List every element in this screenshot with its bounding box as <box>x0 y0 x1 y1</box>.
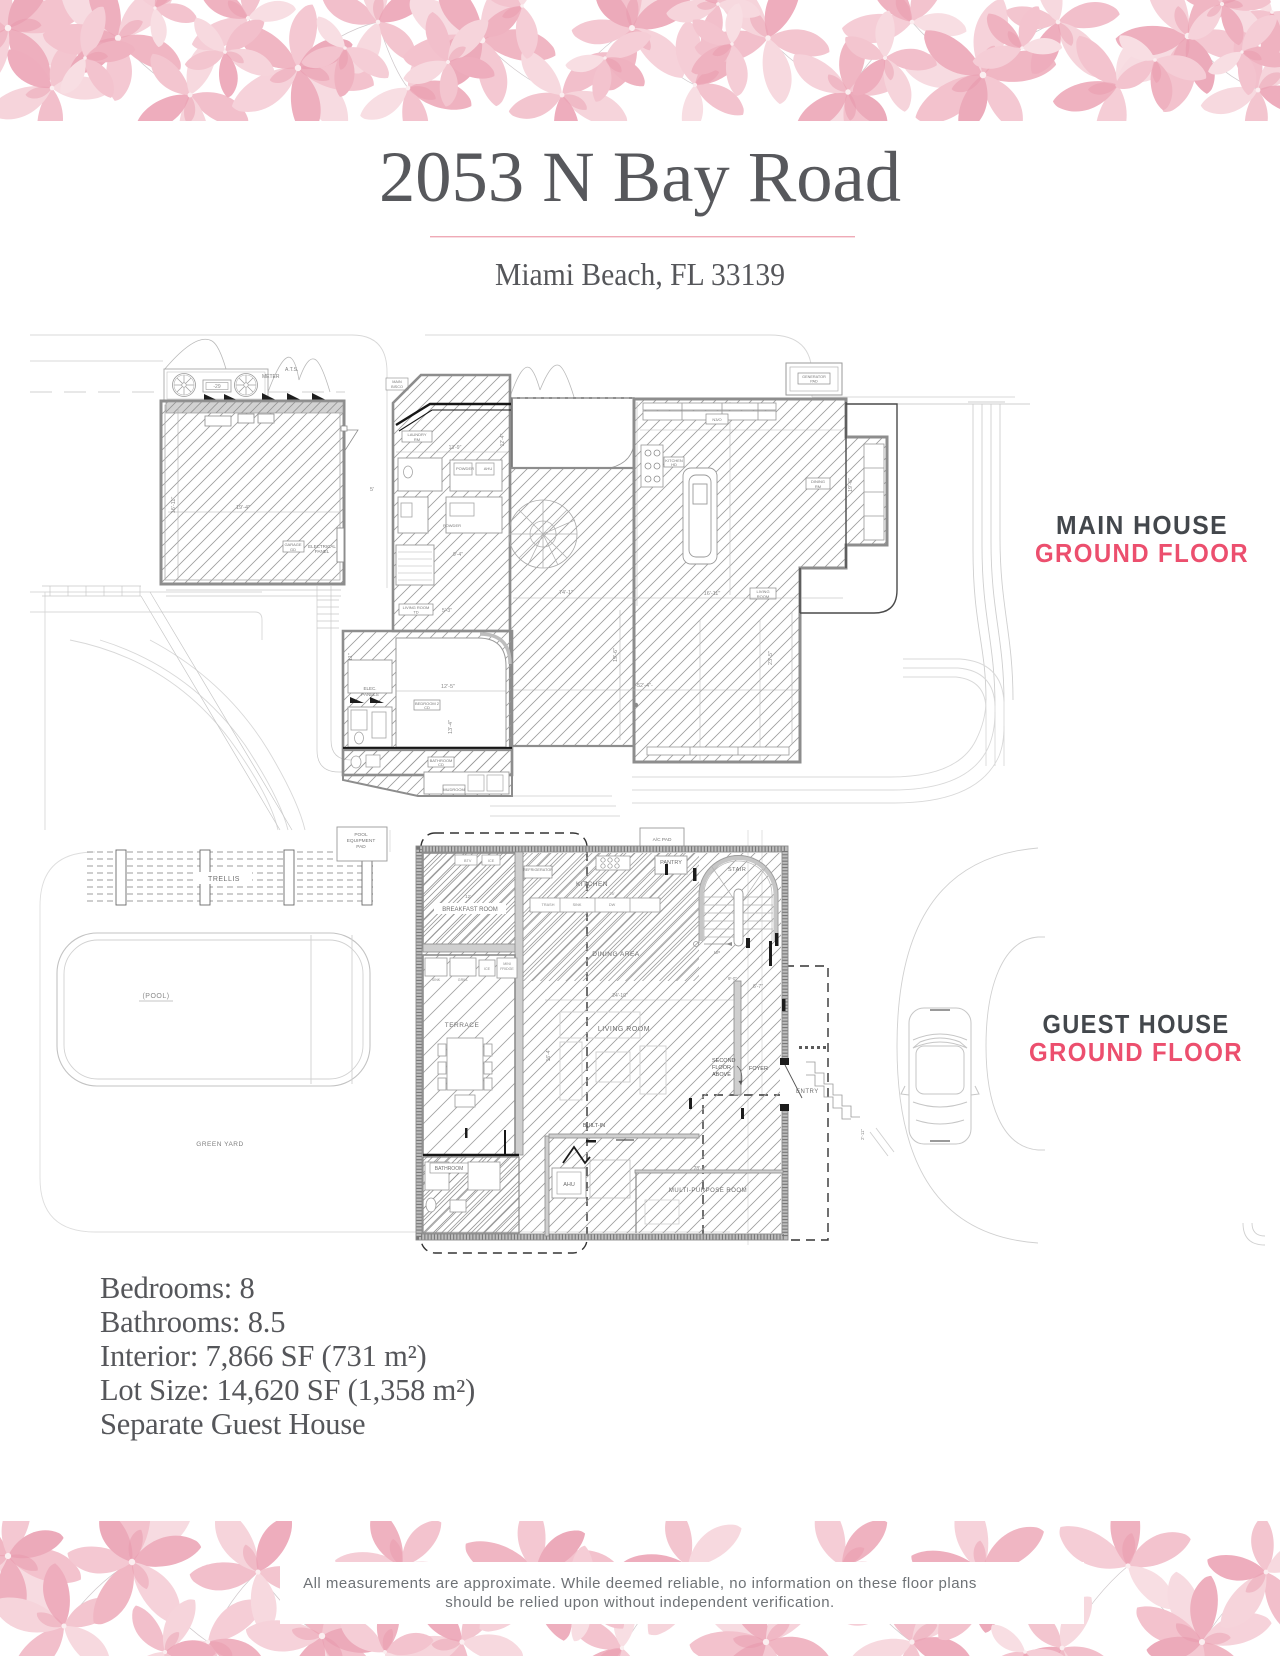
svg-text:POWDER: POWDER <box>456 466 474 471</box>
svg-text:BISCO: BISCO <box>391 385 403 389</box>
svg-text:16'-11": 16'-11" <box>171 497 177 514</box>
svg-text:UP: UP <box>714 950 720 955</box>
svg-text:5': 5' <box>370 487 374 493</box>
svg-text:Bathrooms: 8.5: Bathrooms: 8.5 <box>100 1305 285 1339</box>
svg-text:13'-9": 13'-9" <box>449 445 462 451</box>
svg-text:GREEN YARD: GREEN YARD <box>196 1141 243 1148</box>
svg-text:12'-4": 12'-4" <box>500 433 506 446</box>
svg-text:2'-11": 2'-11" <box>860 1128 865 1140</box>
svg-text:ENTRY: ENTRY <box>796 1089 819 1095</box>
svg-text:-29: -29 <box>213 384 220 390</box>
svg-text:N3/O: N3/O <box>712 417 721 422</box>
svg-text:GROUND FLOOR: GROUND FLOOR <box>1029 1037 1243 1067</box>
svg-text:LIVING ROOM: LIVING ROOM <box>598 1026 650 1033</box>
svg-text:GROUND FLOOR: GROUND FLOOR <box>1035 538 1249 568</box>
svg-text:9'-4": 9'-4" <box>453 552 463 558</box>
svg-text:Interior: 7,866 SF (731 m²): Interior: 7,866 SF (731 m²) <box>100 1339 427 1373</box>
svg-text:74'-1": 74'-1" <box>559 590 573 596</box>
svg-text:GD: GD <box>290 547 296 552</box>
svg-text:5'-3": 5'-3" <box>442 608 452 614</box>
svg-text:PAD: PAD <box>810 380 818 384</box>
svg-text:6'-7": 6'-7" <box>753 984 763 990</box>
svg-text:AHU: AHU <box>484 466 493 471</box>
svg-text:(POOL): (POOL) <box>142 993 169 1000</box>
svg-text:KITCHEN: KITCHEN <box>576 881 608 888</box>
svg-text:METER: METER <box>262 374 280 380</box>
svg-text:MAIN: MAIN <box>392 380 402 384</box>
svg-text:DINING AREA: DINING AREA <box>592 951 640 958</box>
svg-text:Bedrooms: 8: Bedrooms: 8 <box>100 1271 255 1305</box>
svg-text:MINI: MINI <box>503 962 511 966</box>
svg-text:25': 25' <box>609 891 614 896</box>
svg-text:PANTRY: PANTRY <box>660 860 682 866</box>
svg-text:STAIR: STAIR <box>728 867 746 873</box>
svg-text:A/C PAD: A/C PAD <box>653 837 672 843</box>
svg-text:BREAKFAST ROOM: BREAKFAST ROOM <box>442 907 498 913</box>
svg-text:9'-0": 9'-0" <box>728 976 737 981</box>
svg-text:MAIN HOUSE: MAIN HOUSE <box>1056 510 1228 540</box>
svg-text:19'-4": 19'-4" <box>236 505 250 511</box>
svg-text:GUEST HOUSE: GUEST HOUSE <box>1043 1009 1230 1039</box>
svg-text:24'-10": 24'-10" <box>612 993 628 999</box>
svg-text:MULTI-PURPOSE ROOM: MULTI-PURPOSE ROOM <box>669 1188 747 1194</box>
svg-text:PANELS: PANELS <box>361 692 378 697</box>
svg-text:SINK: SINK <box>573 903 582 907</box>
svg-text:19'-6": 19'-6" <box>848 478 854 492</box>
svg-text:should be relied upon without: should be relied upon without independen… <box>445 1594 834 1611</box>
svg-text:GRILL: GRILL <box>458 978 468 982</box>
svg-text:BATHROOM: BATHROOM <box>435 1166 464 1172</box>
svg-text:PAD: PAD <box>356 844 366 850</box>
svg-text:CD: CD <box>438 762 444 767</box>
svg-text:TRASH: TRASH <box>542 903 555 907</box>
svg-text:12'-5": 12'-5" <box>441 684 455 690</box>
svg-text:Miami Beach, FL 33139: Miami Beach, FL 33139 <box>495 256 785 292</box>
svg-text:BTV: BTV <box>464 859 472 863</box>
svg-text:16'-11": 16'-11" <box>704 591 721 597</box>
svg-text:POWDER: POWDER <box>443 523 461 528</box>
svg-text:CD: CD <box>424 705 430 710</box>
svg-text:MUDROOM: MUDROOM <box>443 787 465 792</box>
svg-text:All measurements are approxima: All measurements are approximate. While … <box>303 1575 977 1592</box>
svg-text:ICE: ICE <box>488 859 495 863</box>
svg-text:REFRIGERATOR: REFRIGERATOR <box>523 868 553 872</box>
svg-text:BUILT-IN: BUILT-IN <box>583 1123 605 1129</box>
svg-text:TERRACE: TERRACE <box>445 1022 480 1029</box>
svg-text:-52'-4"-: -52'-4"- <box>635 683 653 689</box>
svg-text:2053 N Bay Road: 2053 N Bay Road <box>379 137 901 217</box>
svg-text:DW: DW <box>609 903 616 907</box>
svg-text:12': 12' <box>465 894 471 899</box>
svg-text:19'-6": 19'-6" <box>613 648 619 662</box>
svg-text:FOYER: FOYER <box>749 1066 768 1072</box>
svg-text:ELEC.: ELEC. <box>363 686 376 691</box>
svg-text:EQUIPMENT: EQUIPMENT <box>347 838 376 844</box>
svg-text:23'-5": 23'-5" <box>768 651 774 665</box>
svg-text:RM: RM <box>414 437 420 442</box>
svg-text:RM: RM <box>815 484 821 489</box>
svg-text:TRELLIS: TRELLIS <box>208 876 240 883</box>
svg-text:Lot Size: 14,620 SF (1,358 m²: Lot Size: 14,620 SF (1,358 m²) <box>100 1373 475 1407</box>
svg-text:ABOVE: ABOVE <box>712 1072 731 1078</box>
svg-text:A.T.S.: A.T.S. <box>285 367 298 373</box>
svg-text:13'-4": 13'-4" <box>448 720 454 734</box>
svg-text:SINK: SINK <box>432 978 441 982</box>
svg-text:AHU: AHU <box>563 1182 575 1188</box>
svg-text:PANEL: PANEL <box>315 549 330 554</box>
svg-text:FLOOR: FLOOR <box>712 1065 731 1071</box>
svg-text:GENERATOR: GENERATOR <box>802 375 826 379</box>
svg-text:POOL: POOL <box>354 832 368 838</box>
svg-text:HD: HD <box>671 462 677 467</box>
svg-text:Separate Guest House: Separate Guest House <box>100 1407 365 1441</box>
svg-text:SECOND: SECOND <box>712 1058 736 1064</box>
svg-text:FRIDGE: FRIDGE <box>500 967 514 971</box>
svg-text:16'-4": 16'-4" <box>546 1048 552 1061</box>
svg-text:TD: TD <box>413 610 418 615</box>
svg-text:ICE: ICE <box>484 967 491 971</box>
